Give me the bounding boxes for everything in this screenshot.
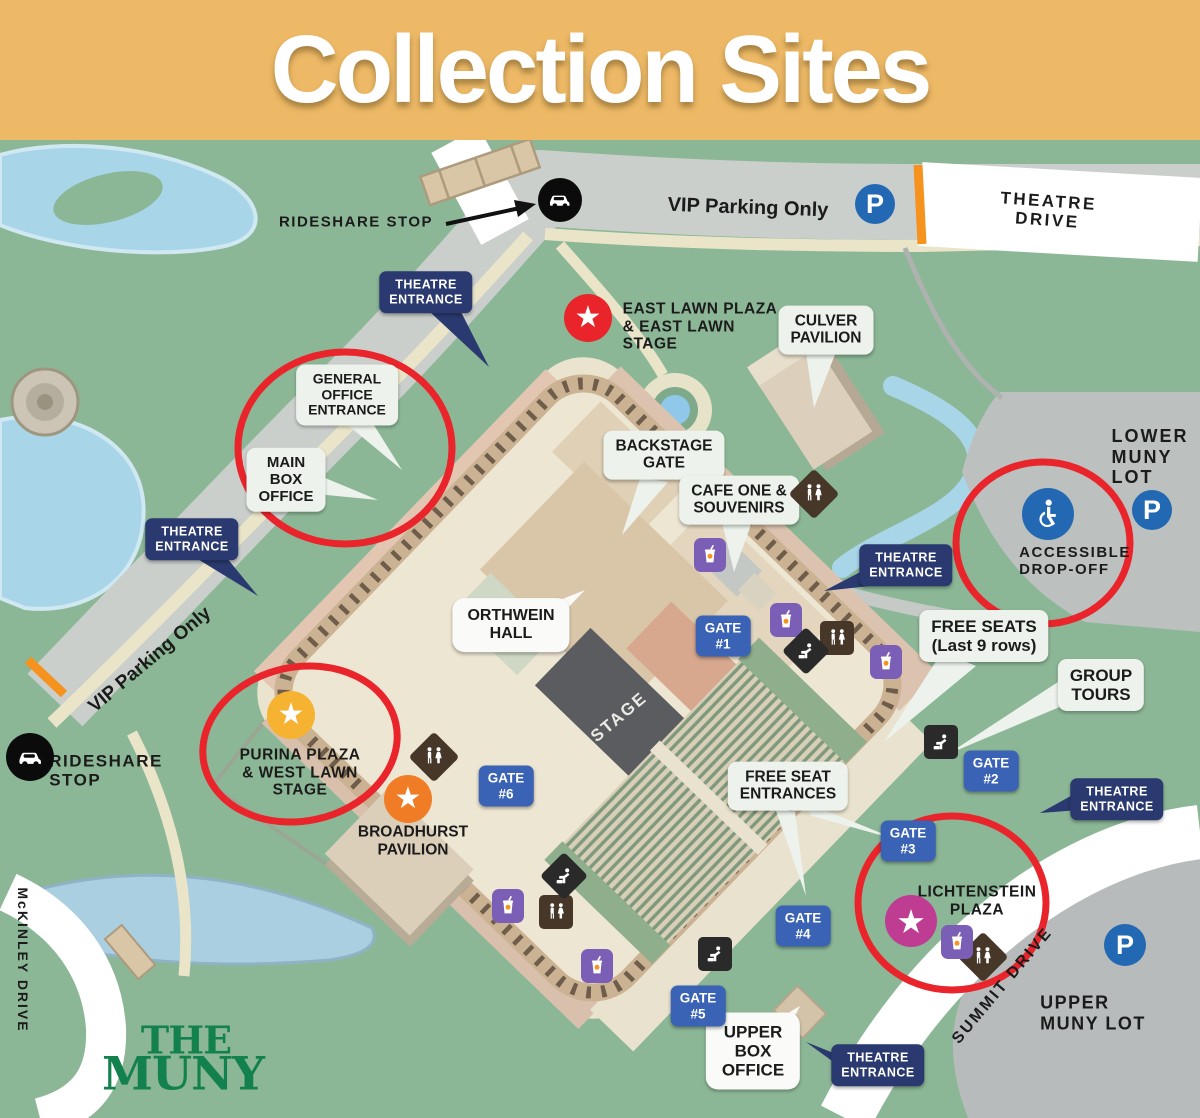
group-tours-bubble: GROUP TOURS [1058,659,1144,711]
muny-logo: THE MUNY [108,1025,264,1094]
concessions-icon [870,645,902,679]
wheelchair-icon [1022,488,1074,540]
gate-2-badge: GATE #2 [964,750,1019,791]
broadhurst-pavilion-label: BROADHURST PAVILION [358,823,468,858]
accessible-dropoff-label: ACCESSIBLE DROP-OFF [1019,544,1131,578]
theatre-entrance-badge-north: THEATRE ENTRANCE [379,271,472,313]
gate-5-badge: GATE #5 [671,985,726,1026]
rideshare-stop-left-label: RIDESHARE STOP [49,752,163,791]
culver-pavilion-bubble: CULVER PAVILION [779,306,874,355]
backstage-gate-bubble: BACKSTAGE GATE [603,431,724,480]
theatre-entrance-badge-south: THEATRE ENTRANCE [831,1044,924,1086]
free-seats-bubble: FREE SEATS (Last 9 rows) [919,610,1048,662]
cafe-one-souvenirs-bubble: CAFE ONE & SOUVENIRS [679,476,799,525]
gate-4-badge: GATE #4 [776,905,831,946]
concessions-icon [941,925,973,959]
rideshare-car-icon-left [6,733,54,781]
map-area: RIDESHARE STOP VIP Parking Only THEATRE … [0,140,1200,1118]
broadhurst-star-icon: ★ [384,775,432,823]
water-fountain-icon [789,634,823,668]
restroom-icon [796,476,832,512]
east-lawn-plaza-label: EAST LAWN PLAZA & EAST LAWN STAGE [623,301,778,354]
water-fountain-icon [547,859,581,893]
purina-plaza-label: PURINA PLAZA & WEST LAWN STAGE [240,747,361,800]
lichtenstein-star-icon: ★ [885,895,937,947]
theatre-entrance-badge-southeast: THEATRE ENTRANCE [1070,778,1163,820]
fountain-tower [12,369,78,435]
muny-logo-muny: MUNY [102,1056,264,1094]
concessions-icon [492,889,524,923]
purina-plaza-star-icon: ★ [267,691,315,739]
gate-1-badge: GATE #1 [696,615,751,656]
theatre-entrance-badge-east: THEATRE ENTRANCE [859,544,952,586]
main-box-office-bubble: MAIN BOX OFFICE [247,448,326,512]
rideshare-stop-top-label: RIDESHARE STOP [279,213,433,230]
mckinley-drive-label: McKINLEY DRIVE [14,887,30,1032]
lower-muny-lot-label: LOWER MUNY LOT [1112,426,1189,488]
parking-icon-lower-lot: P [1132,490,1172,530]
gate-3-badge: GATE #3 [881,820,936,861]
gate-6-badge: GATE #6 [479,765,534,806]
water-fountain-icon [924,725,958,759]
theatre-entrance-badge-west: THEATRE ENTRANCE [145,518,238,560]
free-seat-entrances-bubble: FREE SEAT ENTRANCES [728,762,848,811]
parking-icon-upper-lot: P [1104,924,1146,966]
general-office-entrance-bubble: GENERAL OFFICE ENTRANCE [296,364,398,425]
east-lawn-stage-star-icon: ★ [564,294,612,342]
restroom-icon [416,739,452,775]
upper-muny-lot-label: UPPER MUNY LOT [1040,992,1146,1033]
concessions-icon [694,538,726,572]
page-title: Collection Sites [271,15,930,125]
title-banner: Collection Sites [0,0,1200,140]
concessions-icon [581,949,613,983]
water-fountain-icon [698,937,732,971]
collection-sites-map: Collection Sites [0,0,1200,1118]
rideshare-car-icon-top [538,178,582,222]
parking-icon-vip: P [855,184,895,224]
restroom-icon [539,895,573,929]
orthwein-hall-label: ORTHWEIN HALL [452,598,569,652]
concessions-icon [770,603,802,637]
